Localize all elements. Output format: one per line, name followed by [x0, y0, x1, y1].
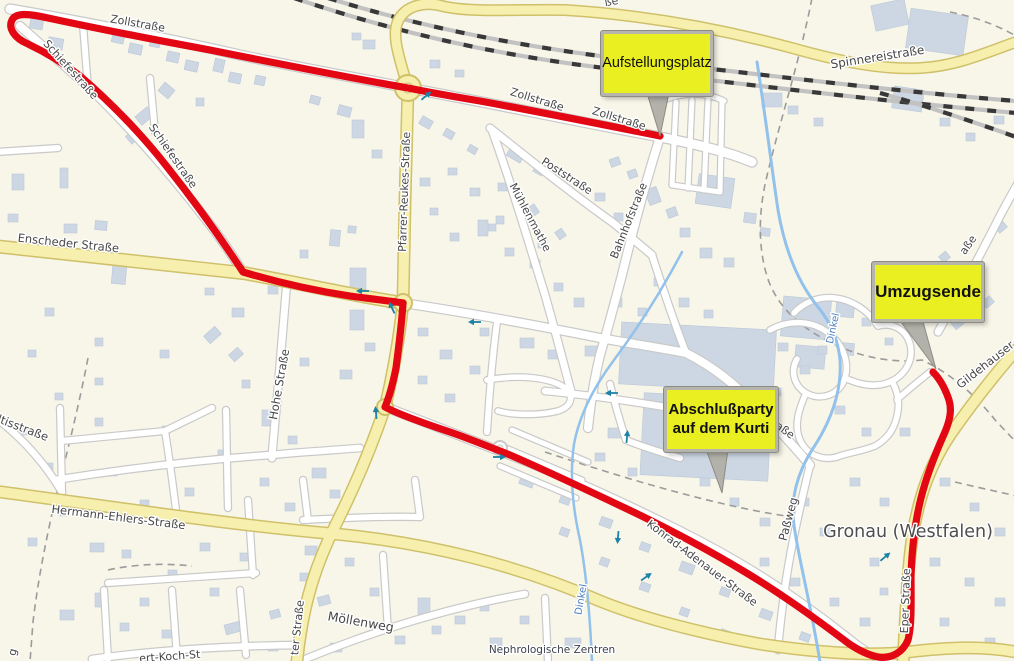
- road-minor: [104, 590, 108, 659]
- map-svg: ZollstraßeSchiefestraßeSchiefestraßeZoll…: [0, 0, 1014, 661]
- building: [680, 228, 690, 237]
- callout-aufstellungsplatz-text: Aufstellungsplatz: [602, 54, 712, 72]
- oneway-arrow-shaft: [376, 411, 377, 419]
- building: [285, 503, 295, 511]
- building: [455, 70, 464, 77]
- building: [330, 490, 340, 498]
- callout-umzugsende: Umzugsende: [872, 262, 984, 322]
- callout-abschlussparty: Abschlußpartyauf dem Kurti: [664, 387, 778, 452]
- building: [940, 478, 950, 486]
- building: [430, 208, 438, 215]
- building: [478, 220, 488, 236]
- building: [122, 550, 131, 558]
- building: [64, 224, 77, 233]
- building: [55, 393, 63, 400]
- building: [448, 168, 457, 175]
- building: [724, 258, 734, 267]
- building: [430, 60, 440, 68]
- building: [885, 338, 893, 345]
- building: [994, 116, 1004, 124]
- building: [350, 268, 366, 290]
- building: [352, 33, 361, 40]
- building: [445, 394, 455, 402]
- building: [205, 288, 214, 295]
- building: [818, 346, 827, 354]
- building: [470, 366, 480, 374]
- building: [995, 528, 1005, 536]
- building: [348, 226, 357, 234]
- building: [930, 558, 940, 566]
- road-minor: [0, 148, 58, 152]
- building: [196, 98, 204, 106]
- building: [242, 380, 250, 388]
- building: [679, 298, 689, 307]
- building: [700, 478, 710, 486]
- building: [372, 150, 382, 158]
- building: [300, 250, 308, 258]
- road-minor: [303, 517, 420, 520]
- building: [95, 378, 103, 385]
- building: [228, 72, 242, 84]
- building: [28, 350, 36, 357]
- building: [440, 350, 452, 359]
- building: [340, 370, 352, 379]
- building: [880, 588, 888, 595]
- building: [268, 286, 278, 294]
- building: [90, 543, 104, 552]
- building: [95, 338, 103, 346]
- building: [232, 308, 244, 317]
- building: [860, 618, 870, 626]
- building: [574, 298, 584, 307]
- building: [370, 588, 379, 596]
- building: [743, 212, 756, 224]
- building: [788, 106, 798, 114]
- oneway-arrow-shaft: [618, 531, 619, 539]
- building: [329, 230, 340, 247]
- building: [470, 188, 480, 196]
- building: [778, 343, 788, 351]
- building: [111, 265, 127, 284]
- building: [95, 220, 108, 230]
- building: [760, 558, 769, 566]
- building: [45, 308, 54, 316]
- building: [352, 120, 364, 138]
- building: [835, 406, 845, 414]
- building: [60, 168, 68, 188]
- building: [628, 468, 637, 476]
- building: [965, 578, 974, 586]
- building: [505, 248, 514, 256]
- building: [12, 174, 24, 190]
- building: [418, 328, 428, 336]
- place-label: Nephrologische Zentren: [489, 644, 615, 656]
- building: [880, 498, 889, 506]
- building: [814, 118, 823, 126]
- building: [455, 616, 465, 624]
- building: [162, 630, 172, 638]
- building: [700, 248, 712, 258]
- building: [704, 310, 713, 318]
- building: [760, 518, 770, 526]
- building: [762, 93, 782, 107]
- road-minor: [720, 102, 722, 192]
- building: [488, 224, 496, 231]
- road-minor: [60, 408, 62, 492]
- building: [210, 588, 219, 596]
- road-minor: [226, 410, 228, 508]
- building: [850, 478, 860, 486]
- building: [940, 118, 950, 126]
- building: [8, 214, 18, 222]
- building: [166, 51, 180, 63]
- building: [496, 216, 504, 224]
- building: [95, 418, 103, 426]
- place-label: Gronau (Westfalen): [823, 522, 993, 542]
- building: [970, 503, 979, 511]
- building: [966, 133, 975, 141]
- callout-abschlussparty-text: auf dem Kurti: [673, 420, 770, 439]
- building: [790, 578, 800, 586]
- callout-aufstellungsplatz: Aufstellungsplatz: [601, 31, 713, 96]
- building: [480, 328, 489, 336]
- building: [940, 618, 949, 626]
- building: [254, 75, 266, 86]
- building: [554, 283, 563, 291]
- building: [60, 610, 74, 620]
- callout-umzugsende-text: Umzugsende: [875, 281, 981, 302]
- building: [420, 178, 430, 186]
- building: [365, 343, 375, 351]
- building: [185, 488, 194, 496]
- oneway-arrow-shaft: [626, 435, 627, 443]
- building: [120, 623, 129, 631]
- building: [800, 366, 810, 374]
- building: [305, 546, 317, 555]
- building: [288, 436, 297, 444]
- building: [450, 233, 459, 241]
- building: [730, 498, 739, 506]
- building: [830, 598, 839, 606]
- building: [870, 558, 879, 566]
- callout-abschlussparty-text: Abschlußparty: [669, 401, 774, 420]
- building: [595, 193, 605, 201]
- street-label: Eper Straße: [898, 568, 913, 634]
- building: [260, 478, 269, 486]
- building: [345, 558, 354, 566]
- building: [595, 453, 605, 461]
- building: [350, 310, 364, 330]
- building: [900, 428, 910, 436]
- map-canvas[interactable]: ZollstraßeSchiefestraßeSchiefestraßeZoll…: [0, 0, 1014, 661]
- building: [432, 626, 441, 634]
- building: [28, 538, 37, 546]
- building: [395, 636, 405, 644]
- building: [862, 428, 871, 436]
- building: [363, 40, 375, 49]
- building: [312, 468, 326, 478]
- building: [520, 338, 534, 348]
- building: [418, 376, 427, 384]
- building: [140, 598, 149, 606]
- building: [520, 616, 529, 624]
- building: [160, 350, 169, 358]
- building: [995, 598, 1005, 606]
- building: [300, 358, 309, 366]
- building: [200, 543, 210, 551]
